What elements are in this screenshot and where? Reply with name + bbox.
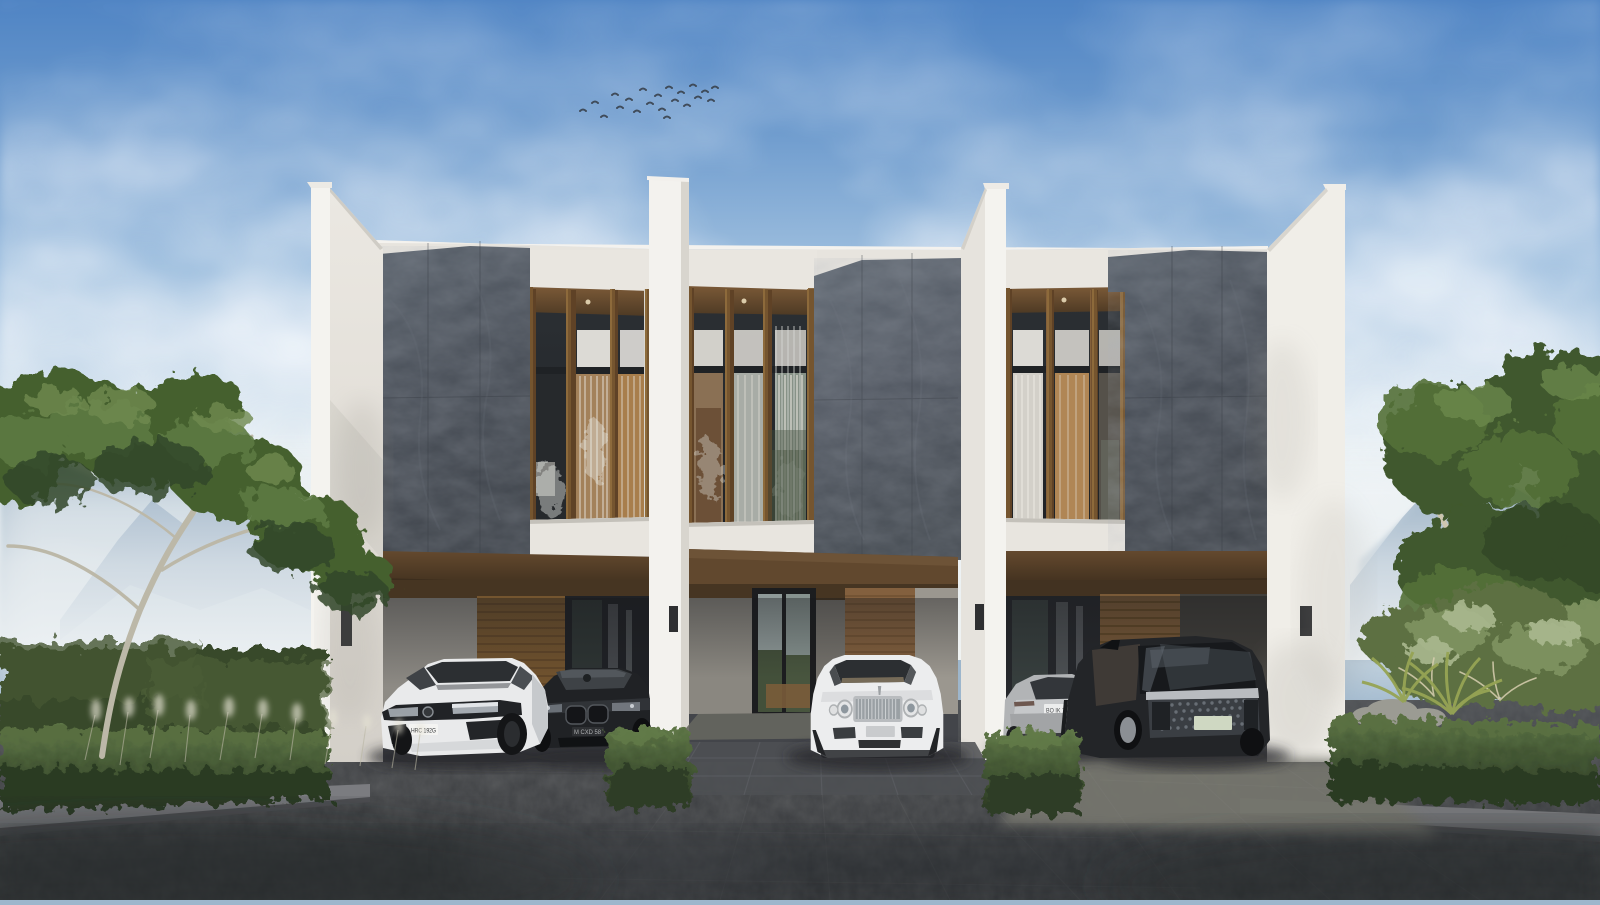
svg-text:M CXD 58: M CXD 58 (574, 730, 602, 736)
